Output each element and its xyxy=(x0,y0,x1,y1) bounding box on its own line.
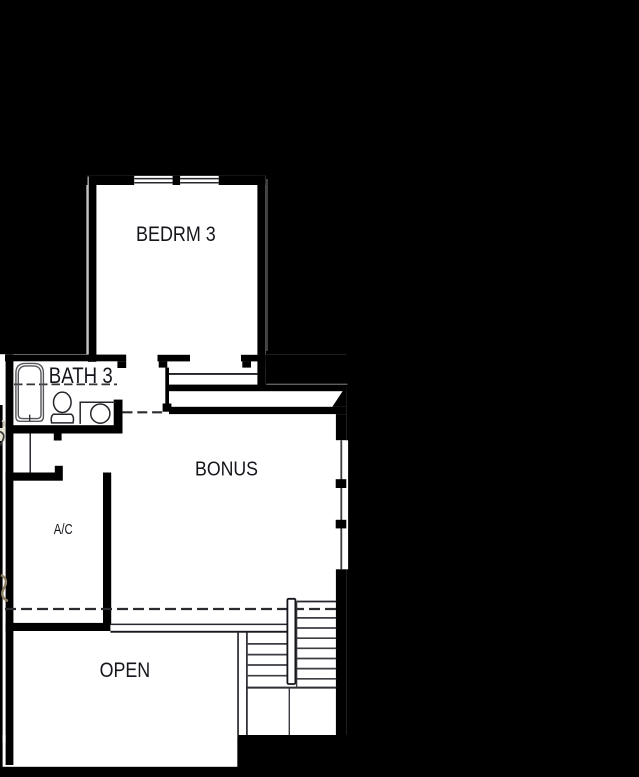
svg-text:BONUS: BONUS xyxy=(195,458,258,480)
svg-text:BATH 3: BATH 3 xyxy=(49,363,113,388)
svg-text:OPEN: OPEN xyxy=(100,659,151,682)
svg-text:A/C: A/C xyxy=(54,522,73,538)
svg-text:BEDRM 3: BEDRM 3 xyxy=(136,221,216,246)
